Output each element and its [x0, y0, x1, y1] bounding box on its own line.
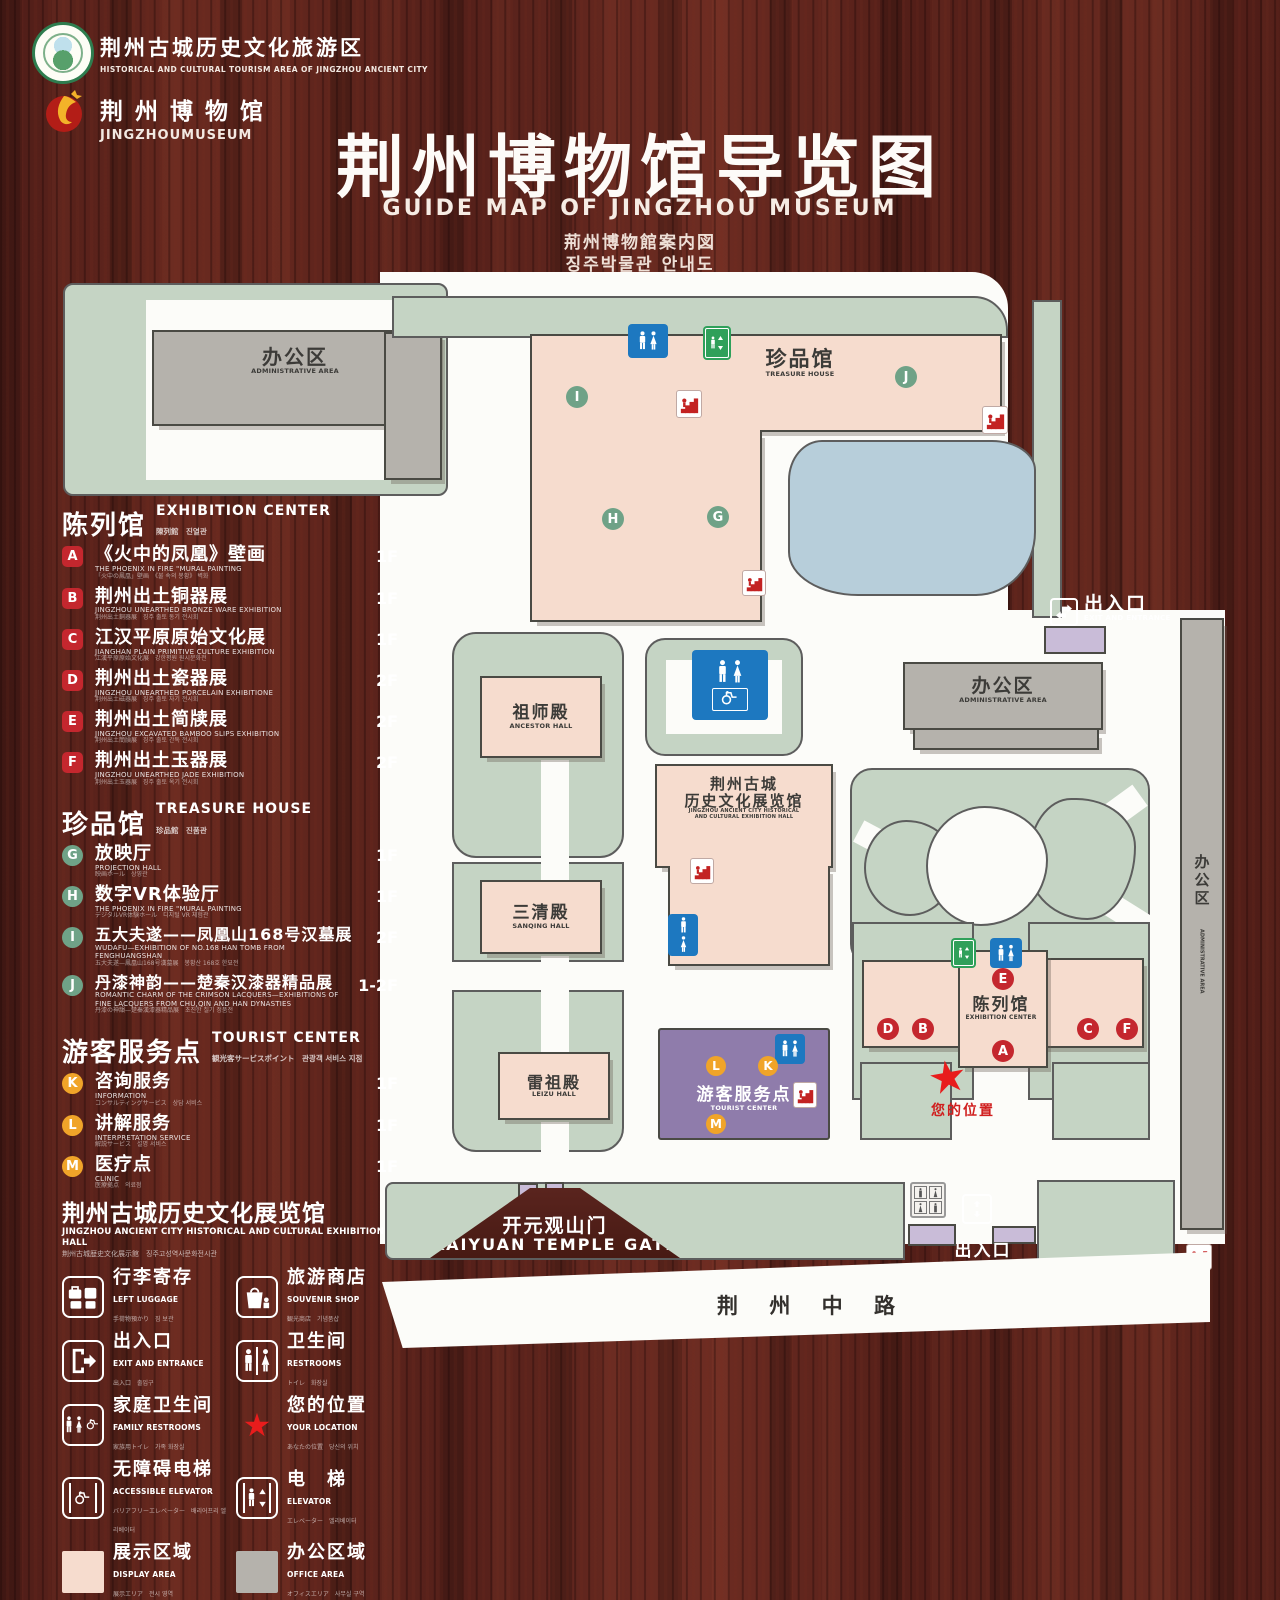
legend-item-f: F 荆州出土玉器展 JINGZHOU UNEARTHED JADE EXHIBI… — [62, 752, 402, 786]
office-area-swatch — [236, 1551, 278, 1593]
stairs-icon — [742, 570, 766, 596]
road: 荆 州 中 路 — [382, 1248, 1210, 1348]
map-badge-f: F — [1116, 1018, 1138, 1040]
display-area-swatch — [62, 1551, 104, 1593]
treasure-house-west-wing — [530, 430, 762, 622]
legend-left-luggage: 行李寄存LEFT LUGGAGE手荷物預かり 짐 보관 — [62, 1268, 228, 1325]
tourism-area-logo: 荆州古城历史文化旅游区 HISTORICAL AND CULTURAL TOUR… — [100, 32, 428, 74]
elevator-icon — [951, 938, 976, 968]
elevator-icon — [703, 326, 731, 360]
legend-souvenir-shop: 旅游商店SOUVENIR SHOP観光商店 기념품샵 — [236, 1268, 402, 1325]
legend-family-restrooms: 家庭卫生间FAMILY RESTROOMS家族用トイレ 가족 화장실 — [62, 1396, 228, 1453]
admin-right-label: 办公区 ADMINISTRATIVE AREA — [913, 676, 1093, 704]
stairs-icon — [690, 858, 714, 884]
legend-restrooms: 卫生间RESTROOMSトイレ 화장실 — [236, 1332, 402, 1389]
exit-right-label: 出入口 EXIT AND ENTRANCE — [1084, 594, 1171, 623]
your-location-icon: ★ — [236, 1404, 278, 1446]
museum-logo: 荆 州 博 物 馆 JINGZHOUMUSEUM — [100, 92, 265, 143]
restroom-icon — [668, 914, 698, 956]
restrooms-icon — [236, 1340, 278, 1382]
page-title-kr: 징주박물관 안내도 — [290, 250, 990, 275]
header: 荆州古城历史文化旅游区 HISTORICAL AND CULTURAL TOUR… — [0, 0, 1280, 270]
family-restrooms-icon — [62, 1404, 104, 1446]
restroom-icon — [775, 1034, 805, 1064]
axis-path — [541, 956, 569, 1052]
souvenir-shop-icon — [236, 1276, 278, 1318]
exhibition-center-label: 陈列馆 EXHIBITION CENTER — [938, 996, 1064, 1021]
restroom-icon — [628, 324, 668, 358]
map-badge-b: B — [912, 1018, 934, 1040]
exit-entrance-icon — [962, 1194, 992, 1224]
exit-entrance-icon — [62, 1340, 104, 1382]
admin-strip-label: 办公区 ADMINISTRATIVE AREA — [1192, 854, 1213, 994]
exit-entrance-icon — [1050, 598, 1078, 626]
sanqing-hall-building: 三清殿SANQING HALL — [480, 880, 602, 954]
elevator-icon — [236, 1477, 278, 1519]
map-badge-c: C — [1077, 1018, 1099, 1040]
map-badge-h: H — [602, 508, 624, 530]
legend-item-e: E 荆州出土简牍展 JINGZHOU EXCAVATED BAMBOO SLIP… — [62, 711, 402, 745]
map-badge-l: L — [706, 1056, 726, 1076]
legend-display-area: 展示区域DISPLAY AREA展示エリア 전시 영역 — [62, 1543, 228, 1600]
city-exhibition-hall-label: 荆州古城 历史文化展览馆 JINGZHOU ANCIENT CITY HISTO… — [657, 776, 831, 820]
tourist-center-label: 游客服务点 TOURIST CENTER — [660, 1086, 828, 1112]
top-lawn-band — [392, 296, 1008, 338]
axis-path — [541, 1122, 569, 1180]
legend-section-treasure-house: 珍品馆 TREASURE HOUSE珍品館 진품관 — [62, 798, 402, 837]
map-badge-e: E — [992, 968, 1014, 990]
map-badge-d: D — [877, 1018, 899, 1040]
legend-item-k: K 咨询服务 INFORMATION コンサルティングサービス 상담 서비스 1… — [62, 1073, 402, 1107]
legend-office-area: 办公区域OFFICE AREAオフィスエリア 사무실 구역 — [236, 1543, 402, 1600]
restroom-icon — [990, 938, 1022, 968]
admin-strip-building: 办公区 ADMINISTRATIVE AREA — [1180, 618, 1224, 1230]
tourism-area-logo-icon — [32, 22, 94, 84]
legend-item-i: I 五大夫遂——凤凰山168号汉墓展 WUDAFU—EXHIBITION OF … — [62, 927, 402, 967]
legend-item-b: B 荆州出土铜器展 JINGZHOU UNEARTHED BRONZE WARE… — [62, 588, 402, 622]
road-label: 荆 州 中 路 — [662, 1290, 962, 1320]
gate-block — [1044, 626, 1106, 654]
accessible-elevator-icon — [62, 1477, 104, 1519]
ancestor-hall-building: 祖师殿ANCESTOR HALL — [480, 676, 602, 758]
legend-your-location: ★ 您的位置YOUR LOCATIONあなたの位置 당신의 위치 — [236, 1396, 402, 1453]
restroom-icon — [692, 650, 768, 720]
legend-section-exhibition-center: 陈列馆 EXHIBITION CENTER陳列館 진열관 — [62, 500, 402, 539]
legend-item-a: A 《火中的凤凰》壁画 THE PHOENIX IN FIRE "MURAL P… — [62, 546, 402, 580]
page-title-en: GUIDE MAP OF JINGZHOU MUSEUM — [290, 196, 990, 221]
leizu-hall-building: 雷祖殿LEIZU HALL — [498, 1052, 610, 1120]
axis-path — [541, 760, 569, 880]
map-badge-i: I — [566, 386, 588, 408]
stairs-icon — [676, 390, 702, 418]
legend-exit-entrance: 出入口EXIT AND ENTRANCE出入口 출입구 — [62, 1332, 228, 1389]
stairs-icon — [982, 406, 1008, 434]
right-lawn-band — [1032, 300, 1062, 618]
legend-item-d: D 荆州出土瓷器展 JINGZHOU UNEARTHED PORCELAIN E… — [62, 670, 402, 704]
left-luggage-icon — [62, 1276, 104, 1318]
exhibition-hall-note: 荆州古城历史文化展览馆 JINGZHOU ANCIENT CITY HISTOR… — [62, 1202, 402, 1259]
legend-sidebar: 陈列馆 EXHIBITION CENTER陳列館 진열관 A 《火中的凤凰》壁画… — [62, 500, 402, 1600]
map-badge-m: M — [706, 1114, 726, 1134]
map-badge-g: G — [707, 506, 729, 528]
your-location-star: ★ — [924, 1053, 970, 1103]
legend-elevator: 电 梯ELEVATORエレベーター 엘리베이터 — [236, 1460, 402, 1536]
legend-item-h: H 数字VR体验厅 THE PHOENIX IN FIRE "MURAL PAI… — [62, 886, 402, 920]
map-badge-a: A — [992, 1040, 1014, 1062]
admin-top-building-wing — [384, 332, 442, 480]
legend-item-c: C 江汉平原原始文化展 JIANGHAN PLAIN PRIMITIVE CUL… — [62, 629, 402, 663]
restroom-icon — [910, 1182, 946, 1218]
museum-logo-icon — [38, 86, 90, 138]
legend-item-g: G 放映厅 PROJECTION HALL 映画ホール 상영관 1F — [62, 845, 402, 879]
your-location-label: 您的位置 — [908, 1100, 1018, 1120]
icon-legend: 行李寄存LEFT LUGGAGE手荷物預かり 짐 보관 旅游商店SOUVENIR… — [62, 1268, 402, 1600]
legend-item-m: M 医疗点 CLINIC 医療拠点 의료점 1F — [62, 1156, 402, 1190]
admin-top-label: 办公区 ADMINISTRATIVE AREA — [200, 346, 390, 375]
legend-item-l: L 讲解服务 INTERPRETATION SERVICE 解説サービス 설명 … — [62, 1115, 402, 1149]
map-badge-k: K — [758, 1056, 778, 1076]
pond — [788, 440, 1036, 596]
map-badge-j: J — [895, 366, 917, 388]
legend-section-tourist-center: 游客服务点 TOURIST CENTER観光客サービスポイント 관광객 서비스 … — [62, 1027, 402, 1066]
legend-item-j: J 丹漆神韵——楚秦汉漆器精品展 ROMANTIC CHARM OF THE C… — [62, 975, 402, 1015]
admin-right-wing — [913, 730, 1099, 750]
exhibition-lawn-se — [1052, 1062, 1150, 1140]
legend-accessible-elevator: 无障碍电梯ACCESSIBLE ELEVATORバリアフリーエレベーター 배리어… — [62, 1460, 228, 1536]
